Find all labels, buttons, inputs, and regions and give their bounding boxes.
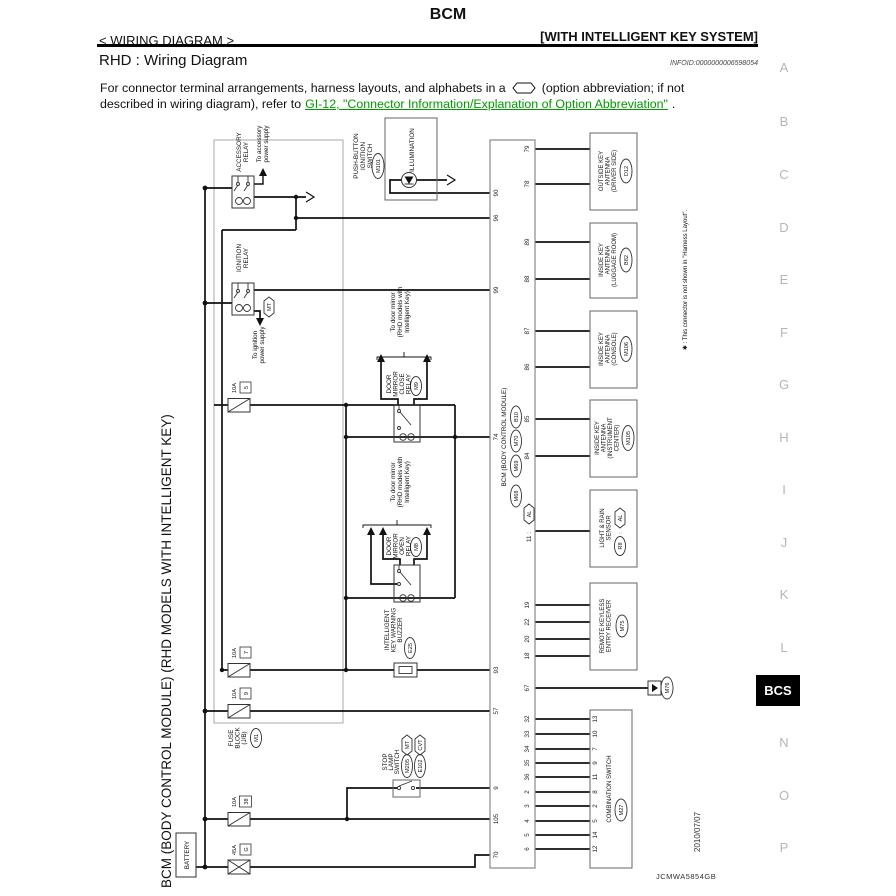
pin11-al-tag: AL (527, 511, 533, 518)
fuse-block-outline (214, 140, 343, 723)
bcm-pin-70: 70 (493, 851, 500, 858)
combo-pin-14: 14 (592, 831, 599, 838)
fusible-link-amp: 45A (232, 845, 238, 855)
instrument-antenna-label4: CENTER) (615, 425, 621, 452)
mirror-note-open2: (RHD models with (397, 456, 404, 507)
relay-internals (234, 176, 415, 790)
combo-pin-8: 8 (592, 790, 599, 794)
close-relay-connector: M9 (414, 382, 420, 390)
mirror-note-close2: (RHD models with (397, 286, 404, 337)
bcm-pin-11: 11 : (526, 532, 533, 542)
light-rain-sensor-label2: SENSOR (607, 515, 613, 541)
fuse-block-label3: (J/B) (241, 731, 248, 744)
bcm-pin-87: 87 (524, 327, 531, 334)
console-antenna-connector: M106 (624, 342, 630, 356)
flow-arrows (254, 168, 455, 535)
mirror-note-close3: Intelligent Key) (404, 291, 411, 333)
harness-footnote: ✱ : This connector is not shown in "Harn… (682, 210, 689, 351)
bcm-pin-3: 3 (524, 804, 531, 808)
ignition-relay-label2: RELAY (243, 247, 250, 268)
open-relay-label4: RELAY (406, 535, 413, 556)
ignition-relay-label: IGNITION (236, 244, 243, 272)
mirror-note-open: To door mirror (390, 462, 397, 501)
stop-lamp-cvt-tag: CVT (418, 739, 424, 751)
diagram-code: JCMWA5854GB (656, 872, 716, 881)
outside-key-antenna-label2: ANTENNA (606, 157, 612, 186)
bcm-pin-22: 22 (524, 618, 531, 625)
combo-pin-9: 9 (592, 761, 599, 765)
bcm-pin-35: 35 (524, 759, 531, 766)
instrument-antenna-label: INSIDE KEY (595, 421, 601, 455)
fuse5-num: 5 (244, 386, 250, 389)
m76-connector-label: M76 (665, 683, 671, 694)
bcm-pin-88: 88 (524, 275, 531, 282)
luggage-antenna-label2: ANTENNA (606, 246, 612, 275)
light-rain-sensor-label: LIGHT & RAIN (600, 508, 606, 547)
ignition-relay-box (232, 283, 254, 315)
bcm-connector-b10: B10 (514, 412, 520, 422)
buzzer-symbol (394, 663, 417, 677)
combo-pin-5: 5 (592, 819, 599, 823)
accessory-note2: power supply (263, 125, 270, 163)
bcm-pin-78: 78 (524, 180, 531, 187)
instrument-antenna-connector: M105 (626, 431, 632, 445)
fuse-number-boxes (240, 382, 252, 855)
bcm-pin-32: 32 (524, 715, 531, 722)
stop-lamp-mt-tag: MT (405, 740, 411, 749)
bcm-pin-79: 79 (524, 145, 531, 152)
pbs-label: PUSH-BUTTON (353, 133, 360, 179)
combo-pin-10: 10 (592, 730, 599, 737)
luggage-antenna-label: INSIDE KEY (599, 243, 605, 277)
light-rain-al-tag: AL (618, 515, 624, 522)
pbs-label2: IGNITION (360, 142, 367, 170)
diagram-date: 2010/07/07 (693, 811, 702, 852)
bcm-pin-2: 2 (524, 790, 531, 794)
light-rain-sensor-box (590, 490, 637, 567)
combo-pin-13: 13 (592, 715, 599, 722)
open-relay-connector: M8 (414, 543, 420, 551)
bcm-pin-86: 86 (524, 363, 531, 370)
bcm-pin-74: 74 (493, 433, 500, 440)
console-antenna-label: INSIDE KEY (599, 332, 605, 366)
instrument-antenna-label3: (INSTRUMENT (608, 417, 614, 459)
combination-switch-label: COMBINATION SWITCH (607, 755, 613, 822)
bcm-pin-85: 85 (524, 415, 531, 422)
keyless-receiver-label: REMOTE KEYLESS (600, 599, 606, 654)
bcm-pin-19: 19 (524, 601, 531, 608)
bcm-pin-36: 36 (524, 773, 531, 780)
wires (196, 149, 648, 867)
wiring-diagram: BCM (BODY CONTROL MODULE) (RHD MODELS WI… (0, 0, 896, 896)
fusible-link-num: G (244, 847, 250, 851)
fuse-block-connector: M1 (254, 734, 260, 742)
outside-key-antenna-label3: (DRIVER SIDE) (612, 150, 618, 192)
bcm-pin-20: 20 (524, 635, 531, 642)
combination-switch-connector: M27 (619, 805, 625, 816)
luggage-antenna-label3: (LUGGAGE ROOM) (612, 233, 618, 287)
mirror-note-open3: Intelligent Key) (404, 461, 411, 503)
fuse9-amp: 10A (232, 689, 238, 699)
fuse9-num: 9 (244, 692, 250, 695)
fuse38-num: 38 (244, 798, 250, 804)
luggage-antenna-connector: B82 (624, 255, 630, 265)
diagram-side-label: BCM (BODY CONTROL MODULE) (RHD MODELS WI… (159, 414, 174, 888)
bcm-pin-89: 89 (524, 238, 531, 245)
bcm-label: BCM (BODY CONTROL MODULE) (501, 388, 508, 487)
bcm-pin-57: 57 (493, 707, 500, 714)
accessory-relay-label: ACCESSORY (236, 131, 243, 171)
option-hexagons (264, 297, 625, 755)
light-rain-sensor-connector: R8 (618, 542, 624, 549)
bcm-pin-4: 4 (524, 819, 531, 823)
fuse7-num: 7 (244, 651, 250, 654)
combo-pin-7: 7 (592, 747, 599, 751)
accessory-relay-label2: RELAY (243, 141, 250, 162)
combo-pin-2: 2 (592, 804, 599, 808)
battery-label: BATTERY (184, 840, 191, 869)
bcm-pin-34: 34 (524, 745, 531, 752)
stop-lamp-cvt-connector: E102 (418, 759, 424, 772)
mirror-note-close: To door mirror (390, 292, 397, 331)
bcm-pin-9: 9 (493, 786, 500, 790)
fuse5-amp: 10A (232, 383, 238, 393)
fuse38-amp: 10A (232, 797, 238, 807)
bcm-pin-105: 105 (493, 813, 500, 824)
outside-key-antenna-connector: D12 (624, 166, 630, 176)
keyless-receiver-label2: ENTRY RECEIVER (607, 599, 613, 652)
ignition-mt-tag: MT (267, 302, 273, 311)
combo-pin-11: 11 (592, 773, 599, 780)
outside-key-antenna-label: OUTSIDE KEY (599, 151, 605, 191)
accessory-note: To accessory (256, 125, 263, 163)
console-antenna-label2: ANTENNA (606, 335, 612, 364)
stop-lamp-mt-connector: M205 (405, 759, 411, 773)
bcm-pin-5: 5 (524, 833, 531, 837)
bcm-pin-84: 84 (524, 452, 531, 459)
stop-lamp-label3: SWITCH (394, 749, 401, 774)
bcm-pin-18: 18 (524, 652, 531, 659)
bcm-pin-6: 6 (524, 847, 531, 851)
buzzer-label3: BUZZER (397, 617, 404, 643)
ignition-note: To ignition (252, 330, 259, 359)
buzzer-connector: E25 (408, 643, 414, 653)
instrument-antenna-label2: ANTENNA (602, 424, 608, 453)
bcm-connector-m68: M68 (514, 491, 520, 502)
bcm-pin-33: 33 (524, 730, 531, 737)
pbs-label3: SWITCH (367, 143, 374, 168)
illumination-led-icon (402, 173, 417, 188)
bcm-pin-67: 67 (524, 684, 531, 691)
accessory-relay-box (232, 176, 254, 208)
ignition-note2: power supply (259, 326, 266, 364)
remote-keyless-receiver-box (590, 583, 637, 670)
pbs-connector: M101 (376, 159, 382, 173)
close-relay-label4: RELAY (406, 373, 413, 394)
keyless-receiver-connector: M75 (620, 621, 626, 632)
bcm-connector-m69: M69 (514, 461, 520, 472)
bcm-pin-90: 90 (493, 189, 500, 196)
illumination-label: ILLUMINATION (409, 128, 416, 172)
combo-pin-12: 12 (592, 845, 599, 852)
bcm-pin-99: 99 (493, 286, 500, 293)
bcm-pin-93: 93 (493, 666, 500, 673)
bcm-pin-96: 96 (493, 214, 500, 221)
bcm-connector-m70: M70 (514, 436, 520, 447)
console-antenna-label3: (CONSOLE) (612, 332, 618, 365)
fuse7-amp: 10A (232, 648, 238, 658)
